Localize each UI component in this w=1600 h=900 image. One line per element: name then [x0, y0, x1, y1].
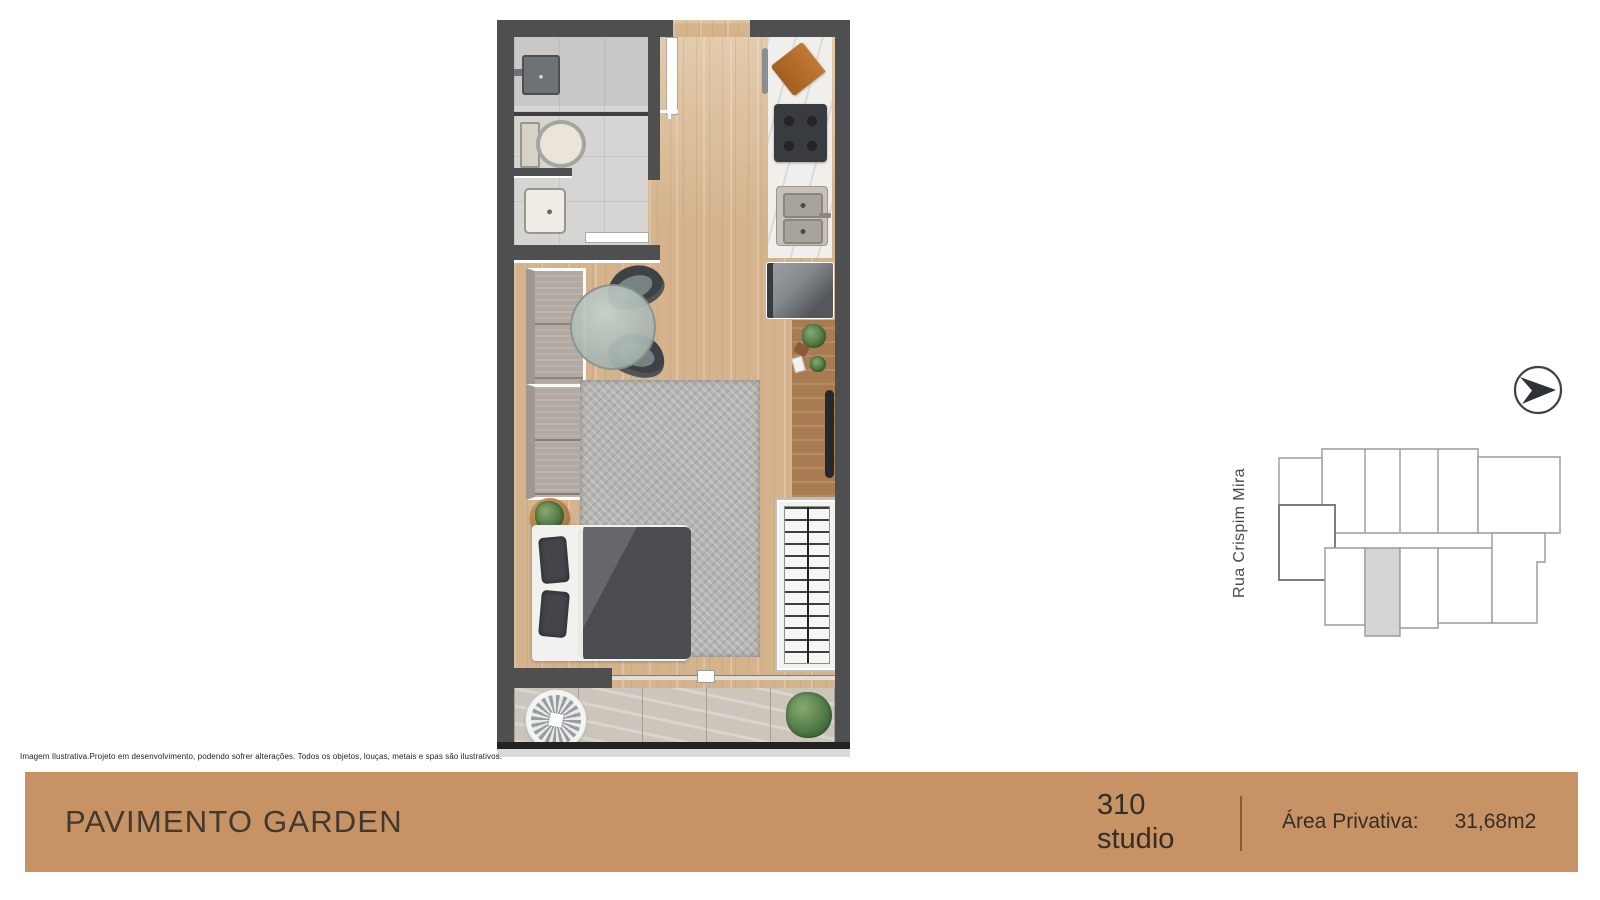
balcony-plant [786, 692, 832, 738]
unit-info: 310 studio [1097, 788, 1174, 856]
entry-threshold [673, 20, 750, 37]
area-label: Área Privativa: [1282, 810, 1419, 834]
toilet [536, 120, 586, 168]
faucet-icon [819, 213, 831, 218]
desk-notepad [791, 356, 806, 373]
counter-edge [762, 48, 768, 94]
page: Rua Crispim Mira Imagem Ilustrativa.Proj… [0, 0, 1600, 900]
cutting-board [771, 42, 826, 97]
fridge [766, 262, 834, 319]
street-label: Rua Crispim Mira [1231, 453, 1249, 613]
footer-bar: PAVIMENTO GARDEN 310 studio Área Privati… [25, 772, 1578, 872]
sliding-door-handle [697, 670, 715, 683]
bed-pillow [538, 590, 570, 638]
unit-number: 310 [1097, 788, 1174, 822]
bed-duvet [578, 527, 691, 659]
wall-left [497, 20, 514, 742]
balcony [514, 688, 835, 742]
wall-bathroom-bottom [514, 245, 660, 260]
dining-table [570, 284, 656, 370]
keyplan-unit [1325, 548, 1365, 625]
cooktop [774, 104, 827, 162]
compass-arrow-icon [1510, 363, 1566, 419]
unit-type: studio [1097, 822, 1174, 856]
wall-bathroom [648, 20, 660, 180]
desk [792, 320, 835, 497]
wall-top-left [497, 20, 673, 37]
bathroom [514, 25, 648, 247]
sliding-door [612, 675, 835, 680]
wardrobe [775, 498, 839, 672]
sink-basin [783, 219, 823, 244]
spa [526, 690, 586, 750]
disclaimer-text: Imagem Ilustrativa.Projeto em desenvolvi… [20, 752, 502, 761]
bathroom-door [585, 232, 649, 243]
shower-head-icon [522, 55, 560, 95]
keyplan-unit [1400, 548, 1438, 628]
balcony-outer-strip [497, 749, 850, 757]
bathroom-sink [524, 188, 566, 234]
desk-plant-small [810, 356, 826, 372]
desk-plant [802, 324, 826, 348]
shower-partition [514, 112, 648, 116]
floor-plan [497, 14, 850, 757]
wardrobe-hangers [784, 506, 830, 664]
footer-divider [1240, 796, 1242, 851]
kitchen-sink [776, 186, 828, 246]
sink-basin [783, 193, 823, 218]
bed [532, 525, 688, 661]
keyplan-unit [1478, 457, 1560, 533]
balcony-wall [497, 668, 612, 688]
wall-trim [514, 260, 660, 263]
tv-soundbar [825, 390, 834, 478]
keyplan-unit [1279, 458, 1322, 505]
kitchen-counter [768, 37, 832, 258]
bed-pillow [538, 536, 570, 584]
keyplan-unit-310-highlight [1365, 548, 1400, 636]
balcony-edge [497, 742, 850, 749]
vanity-wall-trim [514, 176, 572, 178]
wall-right [835, 20, 850, 742]
vanity-wall [514, 168, 572, 176]
keyplan-unit [1438, 548, 1492, 623]
entry-door-handle [668, 104, 671, 119]
area-value: 31,68m2 [1455, 810, 1537, 834]
keyplan [1272, 440, 1562, 640]
area-info: Área Privativa: 31,68m2 [1282, 772, 1536, 872]
keyplan-unit [1492, 533, 1545, 623]
page-title: PAVIMENTO GARDEN [65, 804, 403, 840]
